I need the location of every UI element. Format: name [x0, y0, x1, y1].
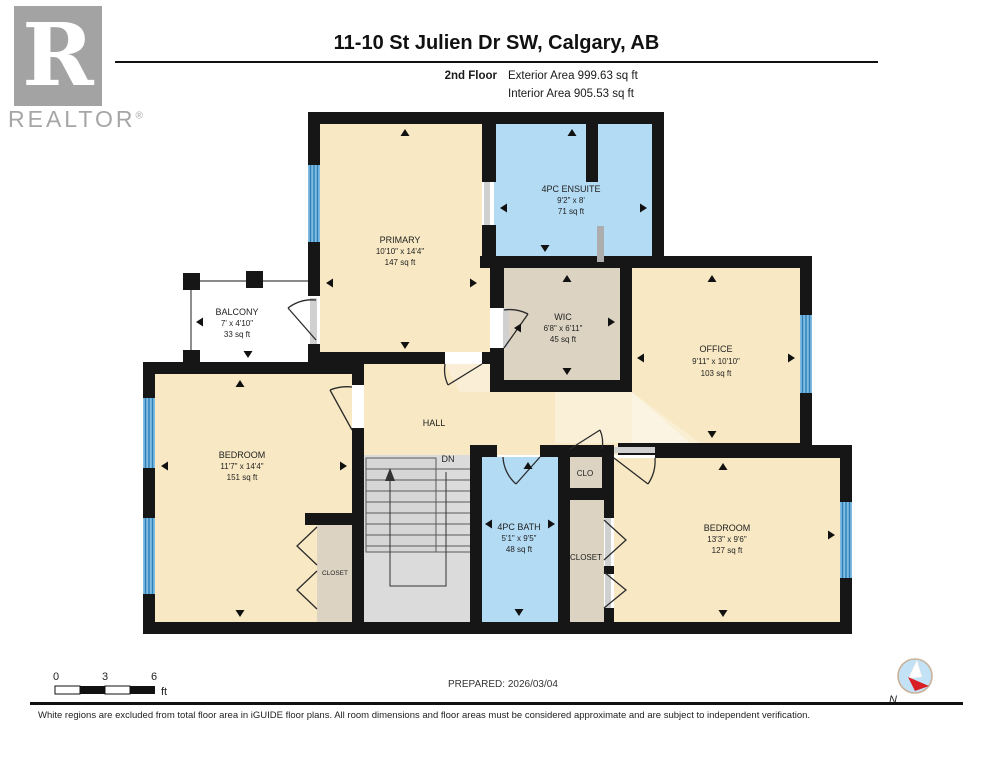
shower-door — [597, 226, 604, 262]
label-hall: HALL — [423, 418, 446, 428]
scale-bar: 0 3 6 ft — [53, 671, 167, 698]
label-clo: CLO — [577, 469, 593, 478]
svg-text:103 sq ft: 103 sq ft — [701, 369, 732, 378]
svg-text:6'8" x 6'11": 6'8" x 6'11" — [544, 324, 583, 333]
balcony-post — [183, 350, 200, 367]
svg-text:45 sq ft: 45 sq ft — [550, 335, 577, 344]
balcony-post — [246, 271, 263, 288]
svg-text:4PC BATH: 4PC BATH — [497, 522, 540, 532]
footer-rule — [30, 702, 963, 705]
prepared-date: PREPARED: 2026/03/04 — [448, 679, 558, 690]
svg-text:BEDROOM: BEDROOM — [704, 523, 751, 533]
svg-text:33 sq ft: 33 sq ft — [224, 330, 251, 339]
svg-text:9'2" x 8': 9'2" x 8' — [557, 196, 585, 205]
window-bedroom-left-2 — [143, 518, 155, 594]
scale-unit: ft — [161, 686, 167, 698]
svg-text:7' x 4'10": 7' x 4'10" — [221, 319, 253, 328]
svg-text:4PC ENSUITE: 4PC ENSUITE — [541, 184, 600, 194]
scale-start: 0 — [53, 671, 59, 683]
svg-text:5'1" x 9'5": 5'1" x 9'5" — [502, 534, 537, 543]
svg-text:BALCONY: BALCONY — [215, 307, 258, 317]
label-dn: DN — [442, 454, 455, 464]
balcony-post — [183, 273, 200, 290]
window-office — [800, 315, 812, 393]
window-bedroom-left-1 — [143, 398, 155, 468]
window-bedroom-right — [840, 502, 852, 578]
disclaimer-text: White regions are excluded from total fl… — [38, 710, 968, 721]
compass-icon: N — [889, 659, 932, 706]
scale-end: 6 — [151, 671, 157, 683]
window-primary — [308, 165, 320, 242]
svg-text:48 sq ft: 48 sq ft — [506, 545, 533, 554]
svg-text:PRIMARY: PRIMARY — [380, 235, 421, 245]
svg-text:10'10" x 14'4": 10'10" x 14'4" — [376, 247, 424, 256]
svg-text:BEDROOM: BEDROOM — [219, 450, 266, 460]
svg-text:11'7" x 14'4": 11'7" x 14'4" — [220, 462, 263, 471]
floorplan-drawing: PRIMARY 10'10" x 14'4" 147 sq ft 4PC ENS… — [0, 0, 993, 768]
svg-text:147 sq ft: 147 sq ft — [385, 258, 416, 267]
svg-text:WIC: WIC — [554, 312, 572, 322]
scale-mid: 3 — [102, 671, 108, 683]
svg-text:151 sq ft: 151 sq ft — [227, 473, 258, 482]
svg-text:71 sq ft: 71 sq ft — [558, 207, 585, 216]
svg-text:9'11" x 10'10": 9'11" x 10'10" — [692, 357, 740, 366]
svg-text:OFFICE: OFFICE — [700, 344, 733, 354]
label-closet-left: CLOSET — [322, 570, 348, 577]
floorplan-page: R REALTOR® 11-10 St Julien Dr SW, Calgar… — [0, 0, 993, 768]
label-closet-center: CLOSET — [570, 553, 602, 562]
svg-text:127 sq ft: 127 sq ft — [712, 546, 743, 555]
svg-text:13'3" x 9'6": 13'3" x 9'6" — [707, 535, 747, 544]
